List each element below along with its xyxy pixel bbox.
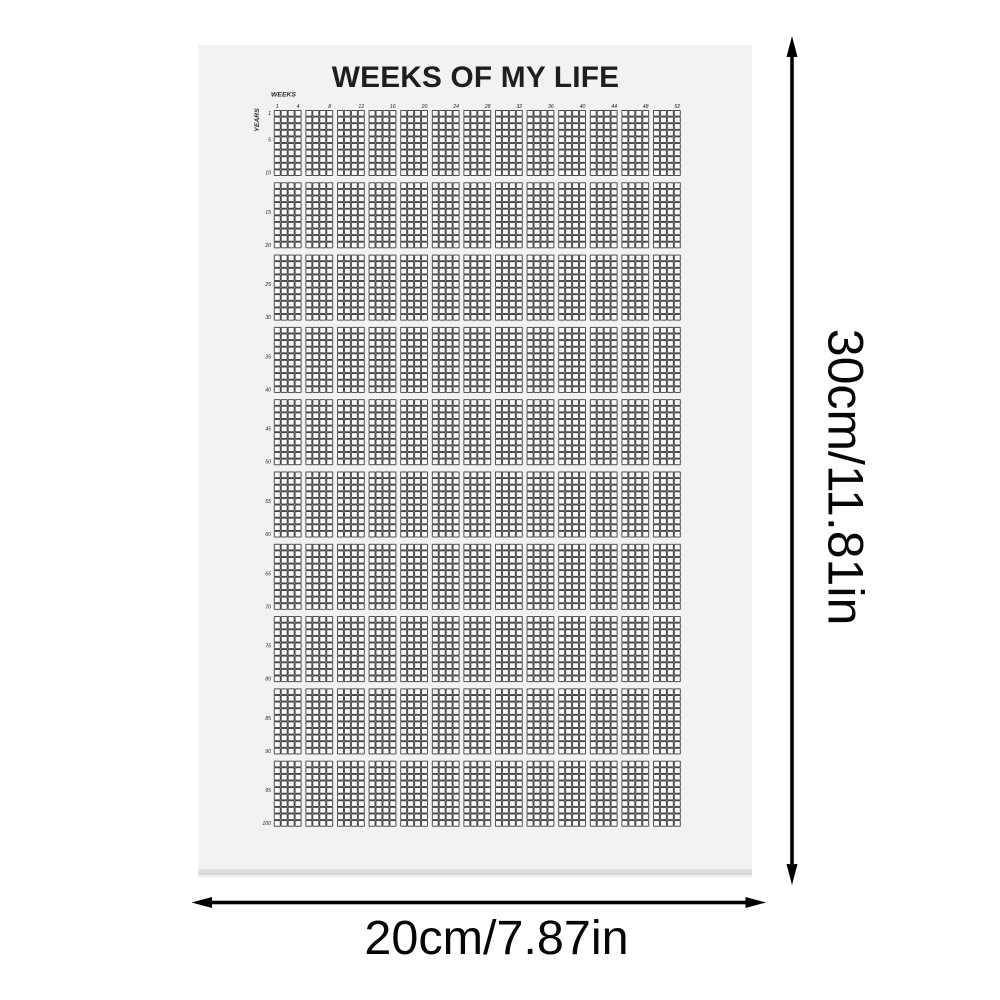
svg-text:30: 30 xyxy=(265,315,271,321)
svg-text:24: 24 xyxy=(452,104,459,110)
svg-text:44: 44 xyxy=(611,104,617,110)
svg-text:36: 36 xyxy=(548,104,554,110)
svg-text:20: 20 xyxy=(264,243,271,249)
svg-text:70: 70 xyxy=(265,604,271,610)
svg-text:12: 12 xyxy=(358,104,364,110)
svg-text:1: 1 xyxy=(268,111,271,117)
svg-text:20: 20 xyxy=(421,104,428,110)
svg-text:100: 100 xyxy=(262,821,271,827)
svg-text:30cm/11.81in: 30cm/11.81in xyxy=(818,329,874,625)
svg-text:10: 10 xyxy=(265,171,271,177)
svg-text:35: 35 xyxy=(265,354,271,360)
svg-text:48: 48 xyxy=(643,104,649,110)
svg-text:15: 15 xyxy=(265,210,271,216)
svg-text:40: 40 xyxy=(580,104,586,110)
svg-text:4: 4 xyxy=(297,104,300,110)
svg-text:65: 65 xyxy=(265,571,271,577)
svg-text:YEARS: YEARS xyxy=(254,108,261,132)
svg-text:90: 90 xyxy=(265,749,271,755)
svg-text:20cm/7.87in: 20cm/7.87in xyxy=(364,911,628,965)
svg-text:85: 85 xyxy=(265,716,271,722)
svg-text:28: 28 xyxy=(484,104,491,110)
svg-text:16: 16 xyxy=(390,104,396,110)
svg-text:60: 60 xyxy=(265,532,271,538)
svg-text:32: 32 xyxy=(516,104,522,110)
svg-text:80: 80 xyxy=(265,677,271,683)
svg-text:WEEKS: WEEKS xyxy=(271,92,296,99)
svg-text:40: 40 xyxy=(265,387,271,393)
svg-text:45: 45 xyxy=(265,427,271,433)
svg-text:1: 1 xyxy=(276,104,279,110)
svg-text:25: 25 xyxy=(264,282,271,288)
svg-text:WEEKS OF MY LIFE: WEEKS OF MY LIFE xyxy=(332,61,619,94)
svg-text:52: 52 xyxy=(674,104,680,110)
svg-text:95: 95 xyxy=(265,788,271,794)
svg-text:5: 5 xyxy=(268,138,271,144)
svg-text:8: 8 xyxy=(328,104,331,110)
svg-text:55: 55 xyxy=(265,499,271,505)
svg-text:75: 75 xyxy=(265,644,271,650)
svg-text:50: 50 xyxy=(265,460,271,466)
